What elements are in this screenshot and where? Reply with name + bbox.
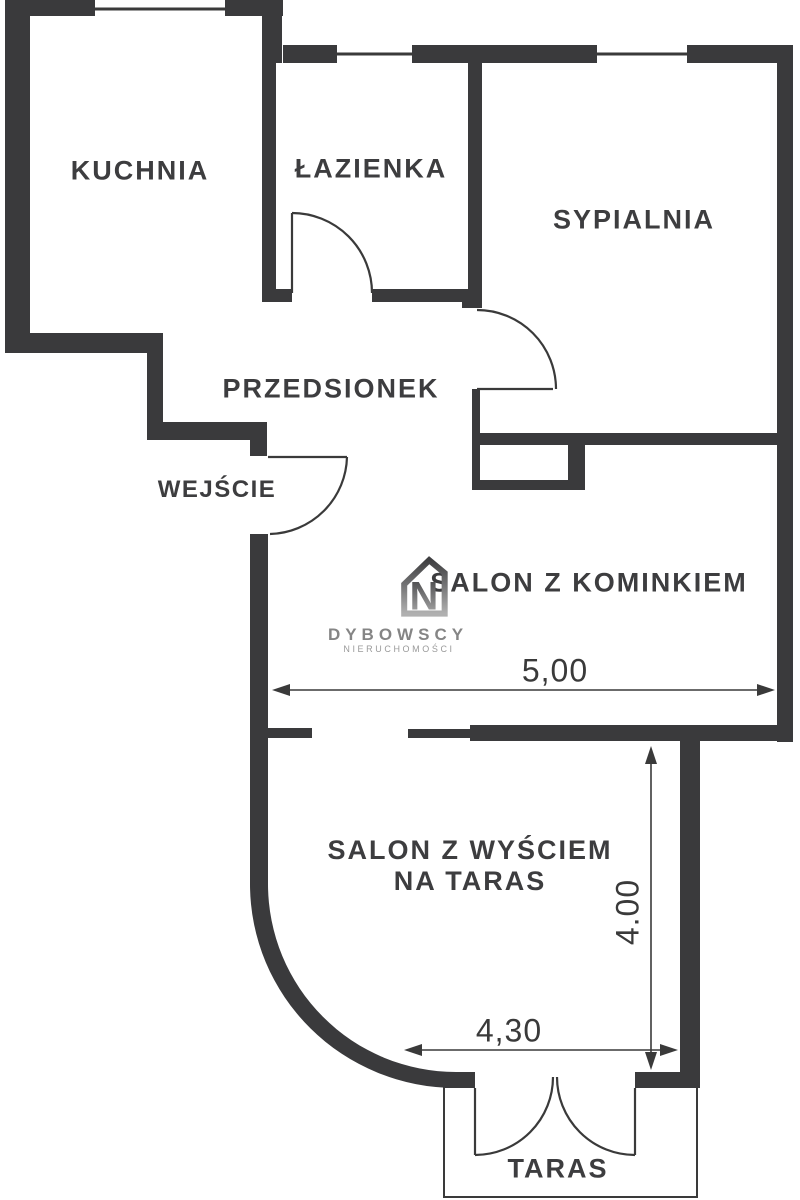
- arrowhead-right: [757, 684, 775, 696]
- arrowhead-down: [645, 1052, 657, 1070]
- arrowhead-right: [660, 1044, 678, 1056]
- room-label-taras: TARAS: [508, 1154, 609, 1185]
- wall: [262, 63, 276, 302]
- wall: [680, 741, 700, 1088]
- wall: [777, 45, 793, 742]
- room-label-salon-taras: SALON Z WYŚCIEM NA TARAS: [300, 835, 640, 897]
- wall: [5, 333, 163, 353]
- wall: [443, 1072, 475, 1088]
- room-label-salon-kominek: SALON Z KOMINKIEM: [430, 568, 748, 599]
- wall: [250, 440, 267, 456]
- windows: [95, 9, 687, 54]
- room-label-przedsionek: PRZEDSIONEK: [222, 374, 439, 405]
- bedroom-door-arc: [477, 310, 556, 389]
- wall: [635, 1072, 700, 1088]
- wall: [468, 63, 482, 308]
- wall: [268, 728, 312, 738]
- room-label-wejscie: WEJŚCIE: [158, 476, 277, 504]
- wall: [408, 729, 470, 738]
- fireplace-niche-wall: [568, 445, 585, 490]
- arrowhead-up: [645, 746, 657, 764]
- room-label-salon-taras-line2: NA TARAS: [394, 866, 547, 896]
- wall: [262, 289, 292, 302]
- wall: [472, 389, 480, 490]
- wall: [283, 45, 337, 63]
- room-label-salon-taras-line1: SALON Z WYŚCIEM: [328, 835, 613, 865]
- room-label-kuchnia: KUCHNIA: [71, 156, 210, 187]
- wall: [372, 289, 468, 302]
- terrace-door-arc: [475, 1077, 553, 1155]
- wall: [147, 422, 267, 440]
- wall: [225, 0, 283, 16]
- logo-subtitle: NIERUCHOMOŚCI: [343, 644, 454, 654]
- logo-name: DYBOWSCY: [328, 625, 468, 645]
- terrace-door-arc: [557, 1077, 635, 1155]
- logo-house-icon: N: [398, 555, 450, 617]
- dimension-label-salon-height: 4.00: [610, 879, 647, 945]
- entrance-door-arc: [270, 457, 347, 534]
- wall: [250, 534, 268, 884]
- floor-plan: KUCHNIA ŁAZIENKA SYPIALNIA PRZEDSIONEK W…: [0, 0, 800, 1200]
- wall: [470, 725, 793, 741]
- curved-wall: [250, 884, 456, 1088]
- wall: [412, 45, 597, 63]
- dimension-label-salon-width: 5,00: [522, 653, 588, 690]
- wall: [480, 433, 793, 445]
- wall: [5, 0, 30, 353]
- bathroom-door-arc: [292, 213, 372, 293]
- room-label-sypialnia: SYPIALNIA: [553, 205, 715, 236]
- logo-monogram: N: [410, 574, 439, 617]
- dimension-label-taras-width: 4,30: [476, 1013, 542, 1050]
- room-label-lazienka: ŁAZIENKA: [295, 154, 448, 185]
- arrowhead-left: [404, 1044, 422, 1056]
- arrowhead-left: [272, 684, 290, 696]
- wall: [262, 15, 282, 63]
